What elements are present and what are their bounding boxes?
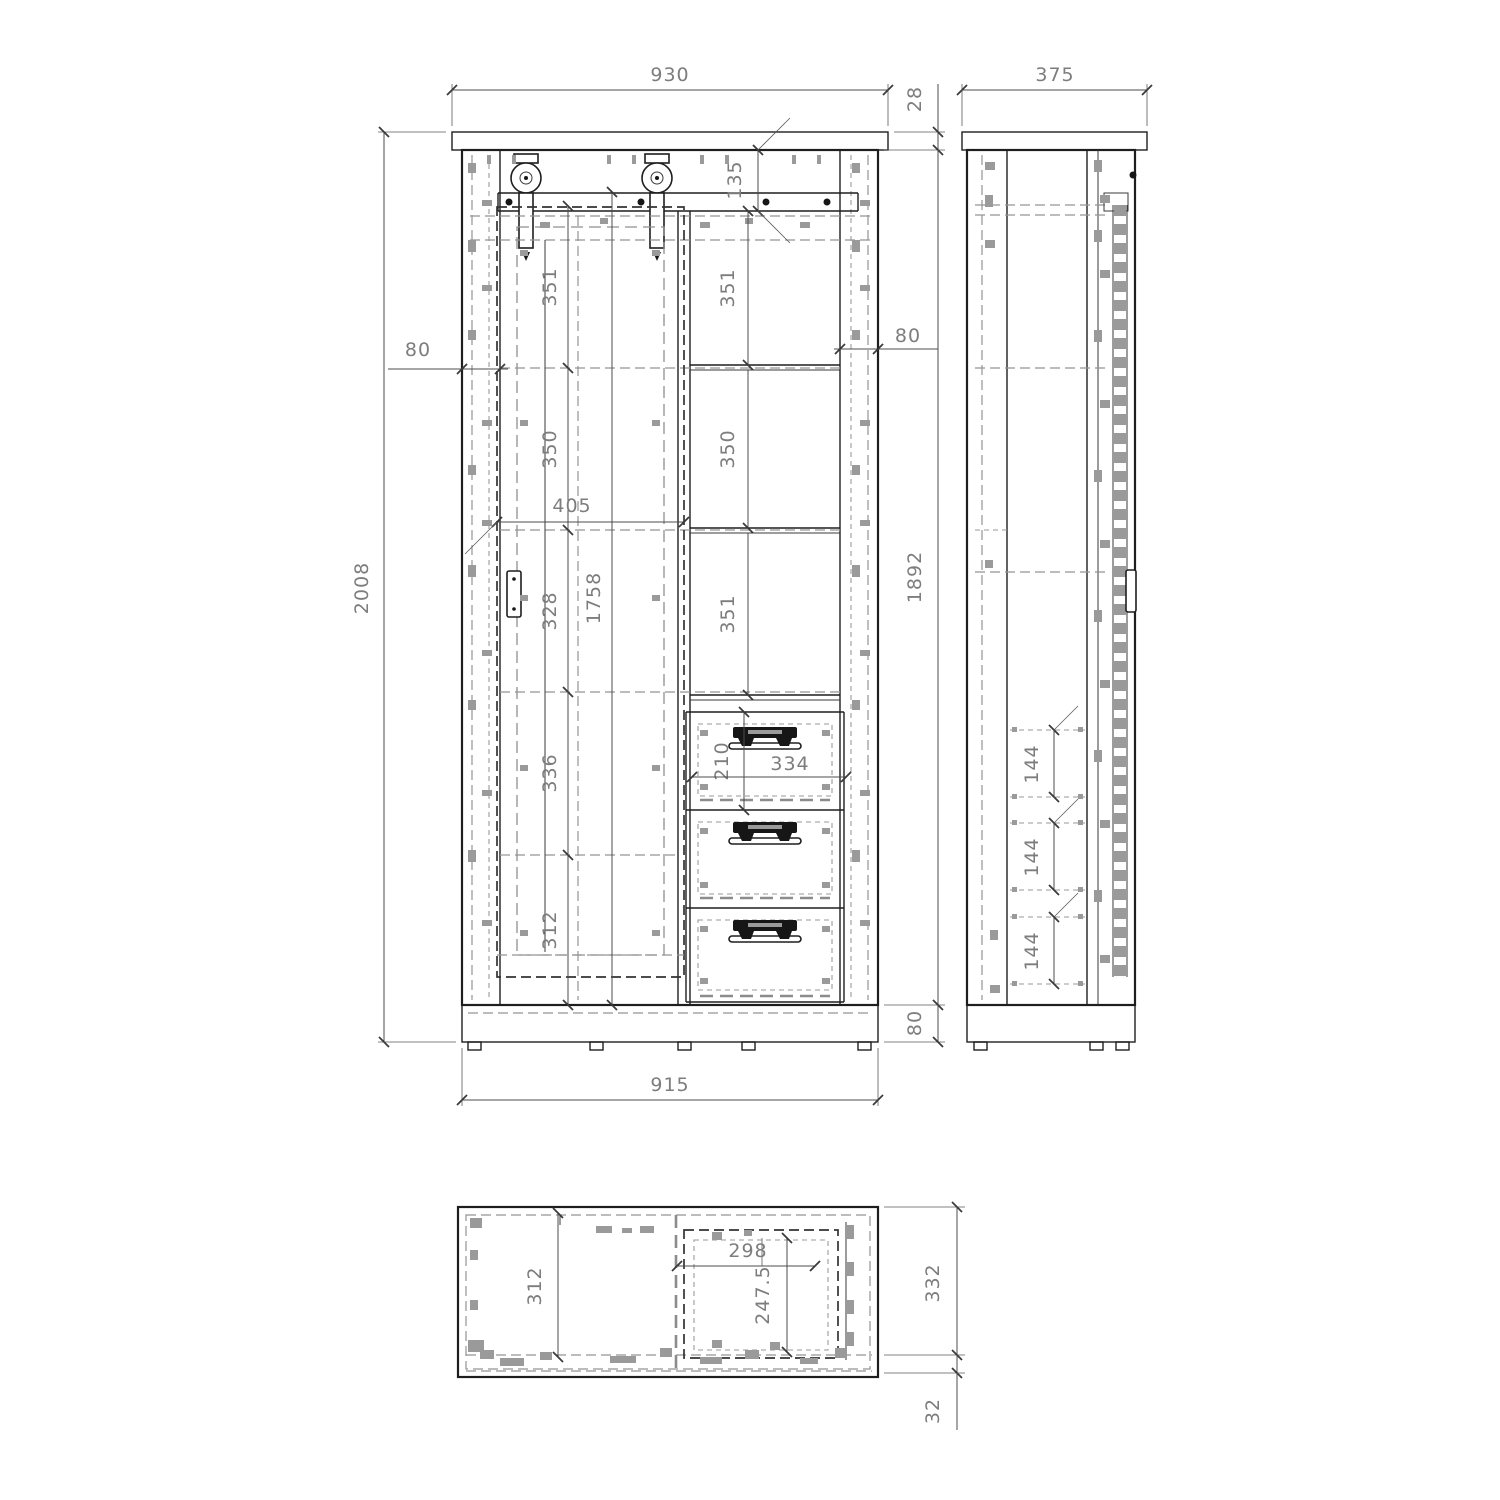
dim-front-door-width: 405 — [552, 495, 591, 517]
dim-front-base-width: 915 — [650, 1074, 689, 1096]
dim-front-left-total: 1758 — [583, 572, 605, 624]
rail-bolt — [763, 199, 770, 206]
side-plinth — [967, 1005, 1135, 1042]
top-view: 312 298 247.5 332 32 — [458, 1207, 965, 1430]
dim-top-drawer-opening-width: 298 — [728, 1240, 767, 1262]
dim-front-overall-width: 930 — [650, 64, 689, 86]
dim-side-drawer-pitch-2: 144 — [1021, 837, 1043, 876]
front-view: 930 2008 28 1892 80 135 — [351, 64, 945, 1106]
dim-front-left-section-3: 328 — [539, 591, 561, 630]
side-sliding-door — [1113, 205, 1136, 977]
dim-top-drawer-depth: 247.5 — [752, 1265, 774, 1324]
dim-front-left-stile: 80 — [405, 339, 431, 361]
rail-bolt-side — [1130, 172, 1137, 179]
dim-top-carcass-depth: 332 — [922, 1263, 944, 1302]
dim-top-interior-depth: 312 — [524, 1266, 546, 1305]
dim-front-drawer-width: 334 — [770, 753, 809, 775]
rail-bolt — [506, 199, 513, 206]
front-feet — [468, 1042, 871, 1050]
drawer-handle[interactable] — [729, 822, 801, 844]
front-drawers — [686, 712, 844, 1002]
dim-front-right-section-2: 350 — [717, 429, 739, 468]
top-dimensions: 312 298 247.5 332 32 — [524, 1207, 965, 1430]
front-body-outline — [462, 150, 878, 1005]
dim-front-rail-height: 135 — [724, 160, 746, 199]
rail-bolt — [638, 199, 645, 206]
front-hardware-marks — [468, 155, 870, 936]
side-hardware-marks — [985, 160, 1110, 993]
dim-side-drawer-pitch-1: 144 — [1021, 744, 1043, 783]
dim-front-top-thickness: 28 — [904, 86, 926, 112]
dim-front-carcass-height: 1892 — [904, 551, 926, 603]
dim-front-plinth-height: 80 — [904, 1010, 926, 1036]
dim-front-right-section-1: 351 — [717, 268, 739, 307]
drawer-handle[interactable] — [729, 920, 801, 942]
drawing-canvas: 930 2008 28 1892 80 135 — [0, 0, 1500, 1500]
dim-front-right-stile: 80 — [895, 325, 921, 347]
dim-front-left-section-1: 351 — [539, 267, 561, 306]
sliding-door-handle[interactable] — [507, 571, 521, 617]
dim-side-depth: 375 — [1035, 64, 1074, 86]
dim-front-right-section-3: 351 — [717, 594, 739, 633]
dim-front-drawer-height: 210 — [711, 741, 733, 780]
dim-top-door-thickness: 32 — [922, 1398, 944, 1424]
dim-front-left-section-5: 312 — [539, 910, 561, 949]
front-top-panel — [452, 132, 888, 150]
dim-front-left-section-4: 336 — [539, 753, 561, 792]
side-door-handle[interactable] — [1126, 570, 1136, 612]
side-view: 375 144 144 144 — [962, 64, 1147, 1050]
front-plinth — [462, 1005, 878, 1042]
drawer-handle[interactable] — [729, 727, 801, 749]
front-dimensions: 930 2008 28 1892 80 135 — [351, 64, 945, 1106]
dim-side-drawer-pitch-3: 144 — [1021, 931, 1043, 970]
side-feet — [974, 1042, 1129, 1050]
dim-front-left-section-2: 350 — [539, 429, 561, 468]
dim-front-overall-height: 2008 — [351, 562, 373, 614]
front-right-shelves — [690, 365, 840, 700]
side-top-panel — [962, 132, 1147, 150]
front-sliding-door — [470, 207, 872, 1000]
side-body-outline — [967, 150, 1135, 1005]
rail-bolt — [824, 199, 831, 206]
technical-drawing: 930 2008 28 1892 80 135 — [0, 0, 1500, 1500]
